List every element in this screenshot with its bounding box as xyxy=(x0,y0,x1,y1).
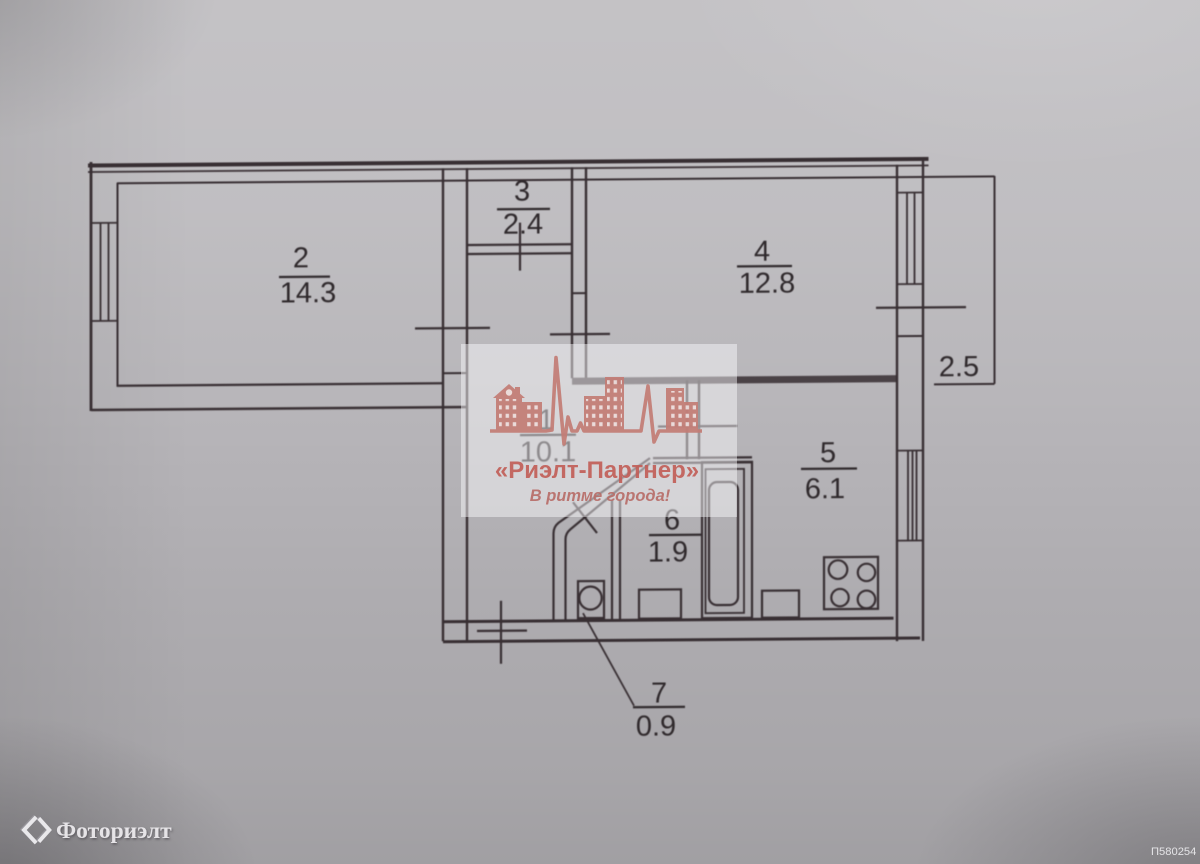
svg-text:В ритме города!: В ритме города! xyxy=(530,487,671,505)
svg-text:«Риэлт-Партнер»: «Риэлт-Партнер» xyxy=(495,457,699,484)
